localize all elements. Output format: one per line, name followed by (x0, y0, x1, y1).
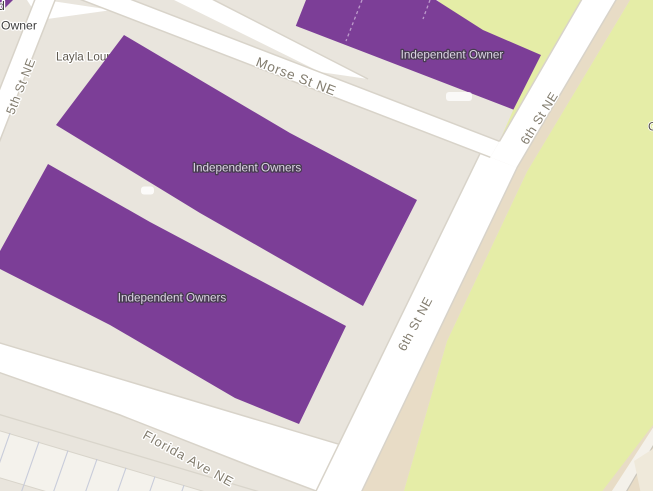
svg-text:Ga: Ga (648, 120, 653, 134)
svg-text:d: d (0, 0, 5, 13)
svg-text:Owner: Owner (1, 19, 37, 33)
svg-text:Independent Owners: Independent Owners (118, 292, 227, 305)
svg-text:Independent Owners: Independent Owners (193, 162, 302, 175)
svg-text:Independent Owner: Independent Owner (401, 49, 504, 62)
